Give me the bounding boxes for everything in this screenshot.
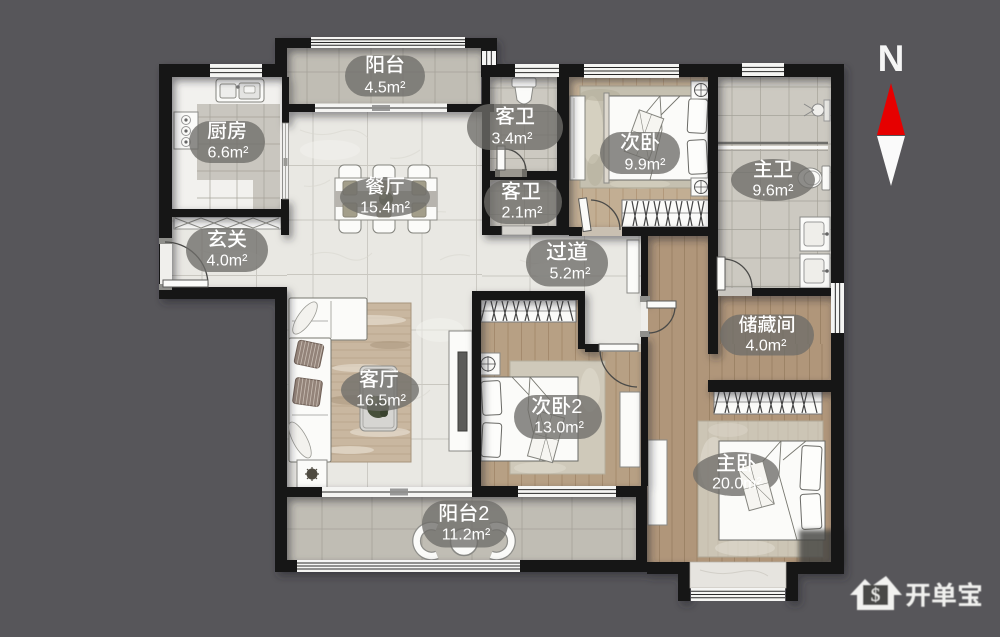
svg-text:16.5m²: 16.5m² <box>356 393 406 410</box>
svg-text:N: N <box>878 38 905 79</box>
svg-text:6.6m²: 6.6m² <box>208 145 250 162</box>
svg-text:2.1m²: 2.1m² <box>502 205 544 222</box>
svg-text:2: 2 <box>571 396 582 418</box>
svg-text:$: $ <box>871 585 881 606</box>
svg-text:13.0m²: 13.0m² <box>534 420 584 437</box>
svg-text:15.4m²: 15.4m² <box>360 200 410 217</box>
svg-text:2: 2 <box>478 503 489 525</box>
svg-text:3.4m²: 3.4m² <box>492 131 534 148</box>
svg-text:4.0m²: 4.0m² <box>207 253 249 270</box>
svg-text:4.0m²: 4.0m² <box>746 338 788 355</box>
svg-text:20.0m²: 20.0m² <box>712 476 762 493</box>
svg-text:5.2m²: 5.2m² <box>550 266 592 283</box>
svg-text:11.2m²: 11.2m² <box>442 527 491 544</box>
svg-text:9.9m²: 9.9m² <box>625 157 667 174</box>
svg-text:9.6m²: 9.6m² <box>753 183 795 200</box>
svg-text:4.5m²: 4.5m² <box>365 80 407 97</box>
